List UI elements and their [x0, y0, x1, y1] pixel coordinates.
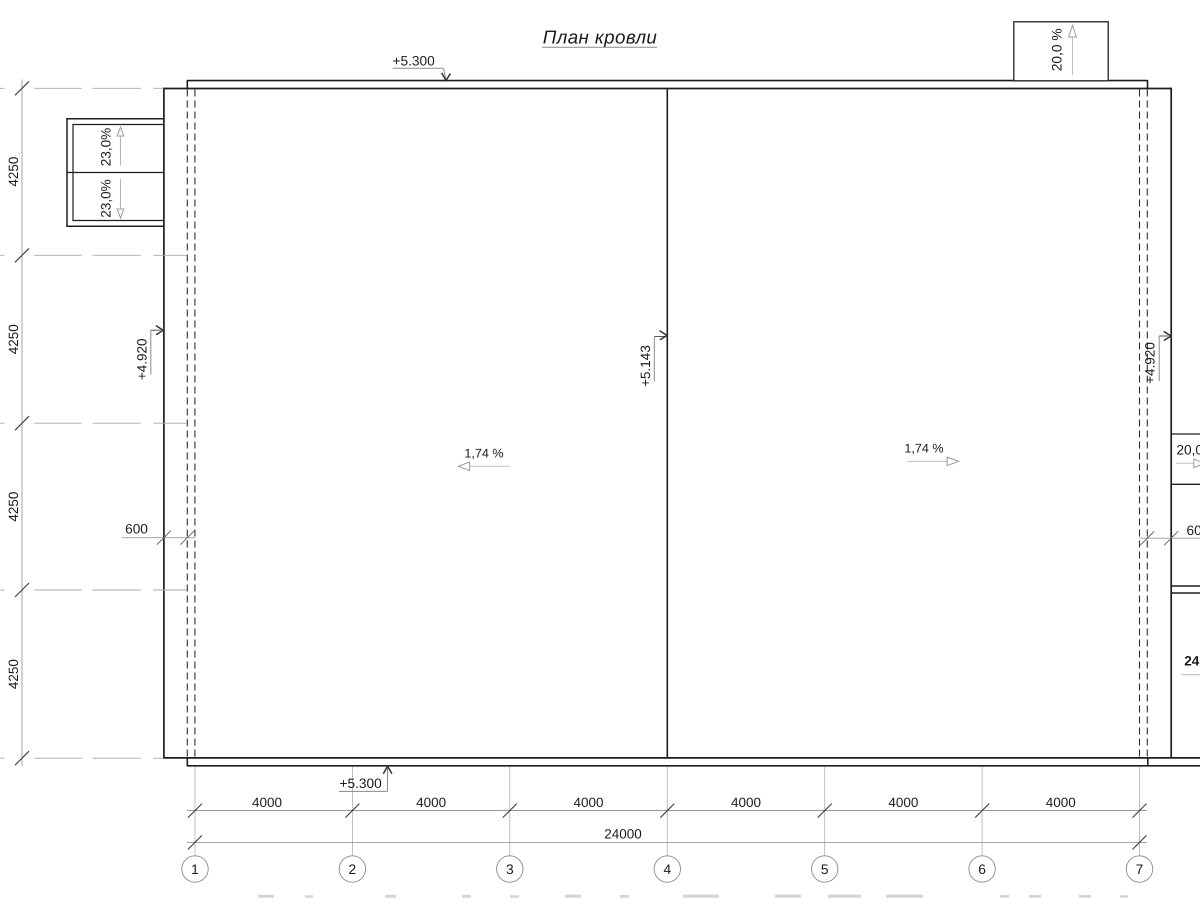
svg-text:+4.920: +4.920 — [134, 338, 149, 380]
svg-text:23,0%: 23,0% — [98, 179, 113, 218]
svg-text:3: 3 — [506, 862, 514, 877]
svg-text:+4.920: +4.920 — [1143, 342, 1158, 384]
svg-text:1,74 %: 1,74 % — [904, 442, 943, 456]
svg-text:20,0 %: 20,0 % — [1176, 443, 1200, 458]
svg-text:4000: 4000 — [416, 795, 446, 810]
svg-text:4000: 4000 — [1046, 795, 1076, 810]
svg-text:+5.300: +5.300 — [393, 54, 436, 69]
svg-text:4000: 4000 — [573, 795, 603, 810]
svg-text:24,7: 24,7 — [1184, 653, 1200, 668]
svg-text:4: 4 — [663, 862, 671, 877]
svg-text:4250: 4250 — [6, 157, 21, 187]
svg-text:+5.300: +5.300 — [340, 776, 383, 791]
svg-text:2: 2 — [349, 862, 357, 877]
svg-text:4000: 4000 — [252, 795, 282, 810]
svg-text:План кровли: План кровли — [543, 27, 658, 48]
svg-text:5: 5 — [821, 862, 829, 877]
svg-text:4000: 4000 — [888, 795, 918, 810]
svg-text:7: 7 — [1136, 862, 1144, 877]
svg-text:1: 1 — [191, 862, 199, 877]
svg-text:6: 6 — [978, 862, 986, 877]
svg-text:24000: 24000 — [604, 827, 642, 842]
svg-text:600: 600 — [1187, 523, 1200, 538]
svg-text:600: 600 — [125, 522, 148, 537]
svg-text:1,74 %: 1,74 % — [464, 447, 503, 461]
svg-text:23,0%: 23,0% — [98, 128, 113, 167]
svg-text:4000: 4000 — [731, 795, 761, 810]
svg-text:4250: 4250 — [6, 659, 21, 689]
svg-text:20,0 %: 20,0 % — [1049, 28, 1064, 71]
svg-text:4250: 4250 — [6, 324, 21, 354]
svg-text:+5.143: +5.143 — [638, 345, 653, 387]
svg-text:4250: 4250 — [6, 492, 21, 522]
